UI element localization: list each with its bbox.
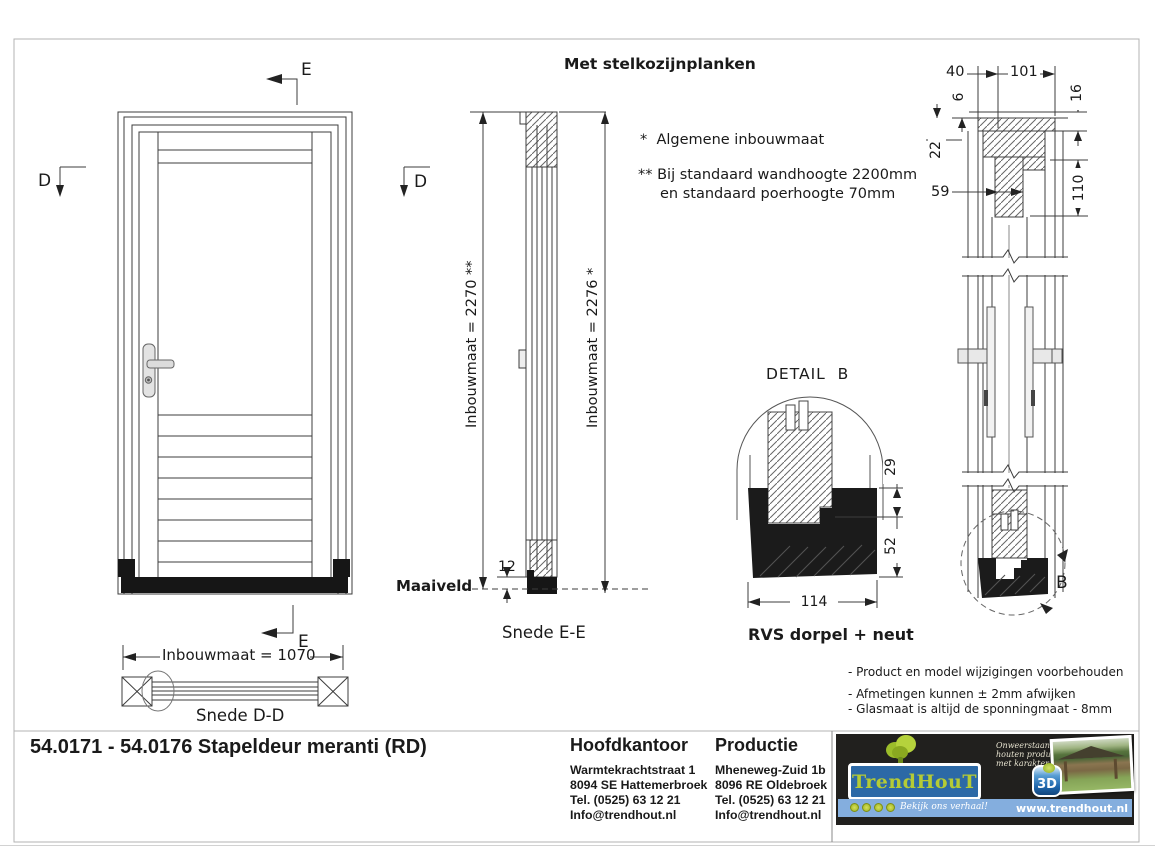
note-standard-line2: en standaard poerhoogte 70mm [660, 186, 895, 203]
gazebo-roof [1057, 744, 1126, 760]
hoofdkantoor-address2: 8094 SE Hattemerbroek [570, 778, 707, 792]
dim-29: 29 [883, 450, 901, 484]
productie-address2: 8096 RE Oldebroek [715, 778, 827, 792]
productie-email: Info@trendhout.nl [715, 808, 821, 822]
technical-drawing-page: { "annotations": { "header_note": "Met s… [0, 0, 1155, 866]
marker-e-top: E [301, 61, 312, 81]
snede-dd-linework [122, 671, 348, 711]
footer-strip: Bekijk ons verhaal! www.trendhout.nl [838, 799, 1132, 817]
branding-panel: TrendHouT Onweerstaanbare houten product… [836, 734, 1134, 825]
tree-icon [884, 735, 918, 765]
gazebo-photo-image [1053, 738, 1132, 792]
door-handle-section [958, 307, 1062, 437]
social-dot-icon [874, 803, 883, 812]
label-snede-dd: Snede D-D [196, 707, 284, 726]
dim-101: 101 [1008, 64, 1040, 81]
break-lines [960, 250, 1070, 492]
trendhout-logo: TrendHouT [848, 763, 981, 800]
brand-text-trend: Trend [852, 771, 916, 793]
hoofdkantoor-address1: Warmtekrachtstraat 1 [570, 763, 695, 777]
disclaimer-2: - Afmetingen kunnen ± 2mm afwijken [848, 688, 1076, 702]
dim-6: 6 [951, 80, 969, 114]
detail-ref-b: B [1056, 574, 1068, 594]
detail-b-caption: RVS dorpel + neut [748, 626, 914, 644]
social-dot-icon [886, 803, 895, 812]
3d-badge-tree-icon [1043, 763, 1055, 773]
website-url: www.trendhout.nl [1016, 802, 1126, 815]
hoofdkantoor-phone: Tel. (0525) 63 12 21 [570, 793, 681, 807]
dim-inbouwmaat-2276: Inbouwmaat = 2276 * [585, 270, 603, 430]
detail-b-stile [768, 401, 832, 523]
section-marker-arrows [56, 74, 408, 638]
dim-110: 110 [1071, 168, 1089, 208]
note-general: * Algemene inbouwmaat [640, 132, 824, 149]
dim-16: 16 [1069, 76, 1087, 110]
detail-b-title: DETAIL B [766, 366, 849, 384]
dim-22: 22 [928, 133, 946, 167]
marker-d-left: D [38, 172, 51, 192]
right-section-bottom-rail [992, 490, 1027, 558]
dim-40: 40 [944, 64, 966, 81]
disclaimer-1: - Product en model wijzigingen voorbehou… [848, 666, 1123, 680]
social-dot-icon [850, 803, 859, 812]
dim-114: 114 [790, 594, 838, 610]
gazebo-photo [1050, 735, 1135, 795]
brand-text-hout: HouT [916, 771, 977, 793]
gazebo-post [1064, 761, 1068, 781]
dim-12: 12 [498, 559, 516, 575]
3d-badge-icon: 3D [1032, 765, 1062, 797]
header-note: Met stelkozijnplanken [564, 56, 756, 74]
social-dot-icon [862, 803, 871, 812]
disclaimer-3: - Glasmaat is altijd de sponningmaat - 8… [848, 703, 1112, 717]
dim-inbouwmaat-1070: Inbouwmaat = 1070 [160, 647, 310, 664]
dim-59: 59 [929, 184, 951, 201]
3d-badge-text: 3D [1037, 777, 1057, 792]
productie-phone: Tel. (0525) 63 12 21 [715, 793, 826, 807]
right-section-dorpel [978, 558, 1048, 598]
story-link-text: Bekijk ons verhaal! [900, 802, 988, 812]
marker-d-right: D [414, 173, 427, 193]
hoofdkantoor-email: Info@trendhout.nl [570, 808, 676, 822]
maaiveld-label: Maaiveld [396, 578, 472, 595]
dim-52: 52 [883, 529, 901, 563]
drawing-title: 54.0171 - 54.0176 Stapeldeur meranti (RD… [30, 736, 427, 759]
note-standard-line1: ** Bij standaard wandhoogte 2200mm [638, 167, 917, 184]
snede-ee-dims [462, 112, 648, 603]
label-snede-ee: Snede E-E [502, 624, 586, 643]
threshold-front [118, 559, 350, 593]
productie-heading: Productie [715, 735, 798, 756]
dim-inbouwmaat-2270: Inbouwmaat = 2270 ** [464, 270, 482, 430]
section-marker-lines [60, 79, 430, 633]
page-frame [0, 39, 1155, 846]
productie-address1: Mheneweg-Zuid 1b [715, 763, 826, 777]
hoofdkantoor-heading: Hoofdkantoor [570, 735, 688, 756]
gazebo-post [1114, 759, 1118, 779]
